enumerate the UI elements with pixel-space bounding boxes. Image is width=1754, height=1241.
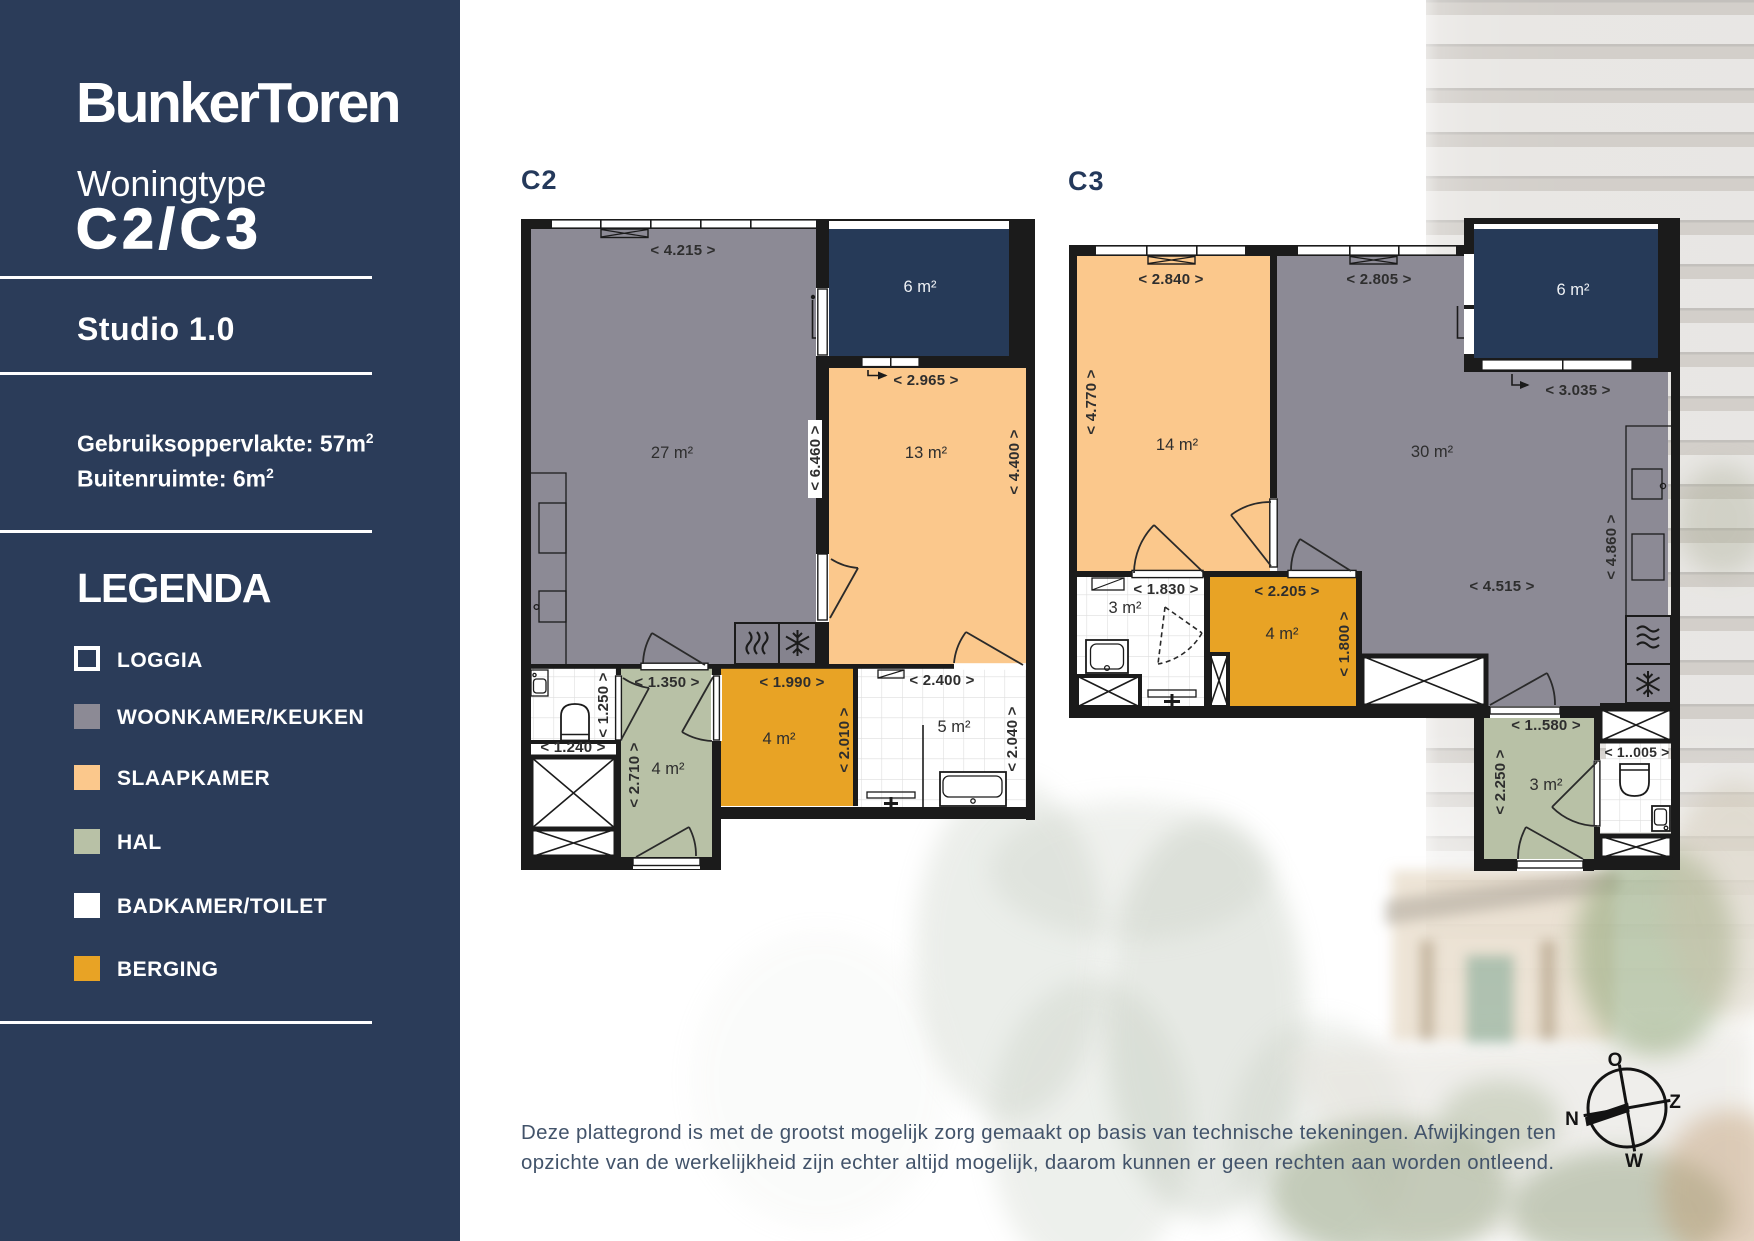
svg-text:30 m²: 30 m² (1411, 443, 1454, 461)
svg-text:< 2.250 >: < 2.250 > (1492, 749, 1509, 814)
svg-text:6 m²: 6 m² (904, 278, 938, 296)
svg-text:< 2.010 >: < 2.010 > (836, 707, 853, 772)
svg-text:C3: C3 (1068, 166, 1105, 196)
svg-text:W: W (1625, 1151, 1643, 1172)
svg-text:< 4.860 >: < 4.860 > (1603, 514, 1620, 579)
svg-text:< 2.040 >: < 2.040 > (1004, 706, 1021, 771)
svg-text:< 4.515 >: < 4.515 > (1469, 578, 1534, 595)
svg-text:< 2.805 >: < 2.805 > (1346, 271, 1411, 288)
svg-text:< 1.250 >: < 1.250 > (595, 672, 612, 737)
svg-text:< 3.035 >: < 3.035 > (1545, 382, 1610, 399)
svg-text:6 m²: 6 m² (1557, 281, 1591, 299)
svg-text:< 1.830 >: < 1.830 > (1133, 581, 1198, 598)
svg-text:< 1.240 >: < 1.240 > (540, 739, 605, 756)
svg-text:4 m²: 4 m² (652, 760, 686, 778)
svg-text:< 1..580 >: < 1..580 > (1511, 717, 1581, 734)
svg-text:< 6.460 >: < 6.460 > (807, 425, 824, 490)
svg-text:< 1..005 >: < 1..005 > (1604, 744, 1669, 760)
svg-text:< 2.840 >: < 2.840 > (1138, 271, 1203, 288)
svg-text:5 m²: 5 m² (938, 718, 972, 736)
svg-text:< 4.770 >: < 4.770 > (1083, 369, 1100, 434)
svg-text:< 2.965 >: < 2.965 > (893, 372, 958, 389)
svg-text:4 m²: 4 m² (1266, 625, 1300, 643)
svg-text:13 m²: 13 m² (905, 444, 948, 462)
svg-text:14 m²: 14 m² (1156, 436, 1199, 454)
svg-text:< 1.800 >: < 1.800 > (1336, 611, 1353, 676)
svg-text:< 2.205 >: < 2.205 > (1254, 583, 1319, 600)
svg-text:< 2.400 >: < 2.400 > (909, 672, 974, 689)
svg-text:Z: Z (1669, 1092, 1681, 1113)
svg-text:< 4.400 >: < 4.400 > (1006, 429, 1023, 494)
svg-text:27 m²: 27 m² (651, 444, 694, 462)
svg-text:O: O (1608, 1050, 1623, 1071)
svg-text:< 1.990 >: < 1.990 > (759, 674, 824, 691)
svg-text:4 m²: 4 m² (763, 730, 797, 748)
svg-text:< 1.350 >: < 1.350 > (634, 674, 699, 691)
svg-text:C2: C2 (521, 165, 558, 195)
svg-text:3 m²: 3 m² (1109, 599, 1143, 617)
svg-text:3 m²: 3 m² (1530, 776, 1564, 794)
svg-text:< 2.710 >: < 2.710 > (626, 742, 643, 807)
svg-text:< 4.215 >: < 4.215 > (650, 242, 715, 259)
